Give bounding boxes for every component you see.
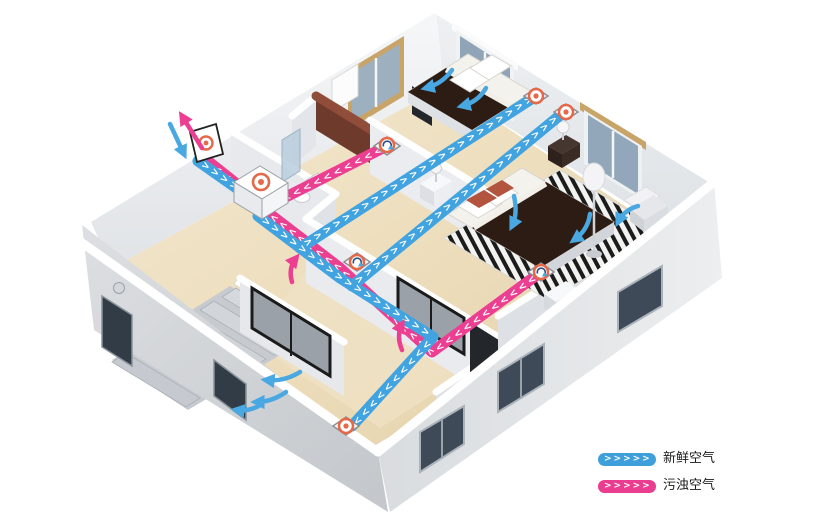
floor-lamp-shade — [583, 163, 605, 191]
floor-lamp-base — [586, 250, 602, 258]
vent-dot — [204, 141, 209, 146]
house-illustration: >>>>>>>>>>>>>>>>>>>>>>>>>>>>>>>>>> >>>>>… — [0, 0, 824, 529]
exhaust-air-swatch: >>>>> — [598, 480, 656, 493]
fresh-air-swatch: >>>>> — [598, 453, 656, 466]
fresh-in-arrow — [170, 124, 184, 154]
legend-chevrons: >>>>> — [604, 454, 652, 464]
legend-label-exhaust-air: 污浊空气 — [663, 479, 715, 493]
ventilation-diagram-page: { "legend": { "items": [ {"id":"fresh-ai… — [0, 0, 824, 529]
door-knob — [114, 283, 125, 294]
legend-item-exhaust-air: >>>>> 污浊空气 — [598, 479, 715, 493]
legend-item-fresh-air: >>>>> 新鲜空气 — [598, 452, 715, 466]
legend: >>>>> 新鲜空气 >>>>> 污浊空气 — [598, 452, 715, 506]
unit-vent-dot — [258, 179, 264, 185]
legend-chevrons: >>>>> — [604, 481, 652, 491]
wall-vent-panel — [170, 116, 223, 162]
legend-label-fresh-air: 新鲜空气 — [663, 452, 715, 466]
